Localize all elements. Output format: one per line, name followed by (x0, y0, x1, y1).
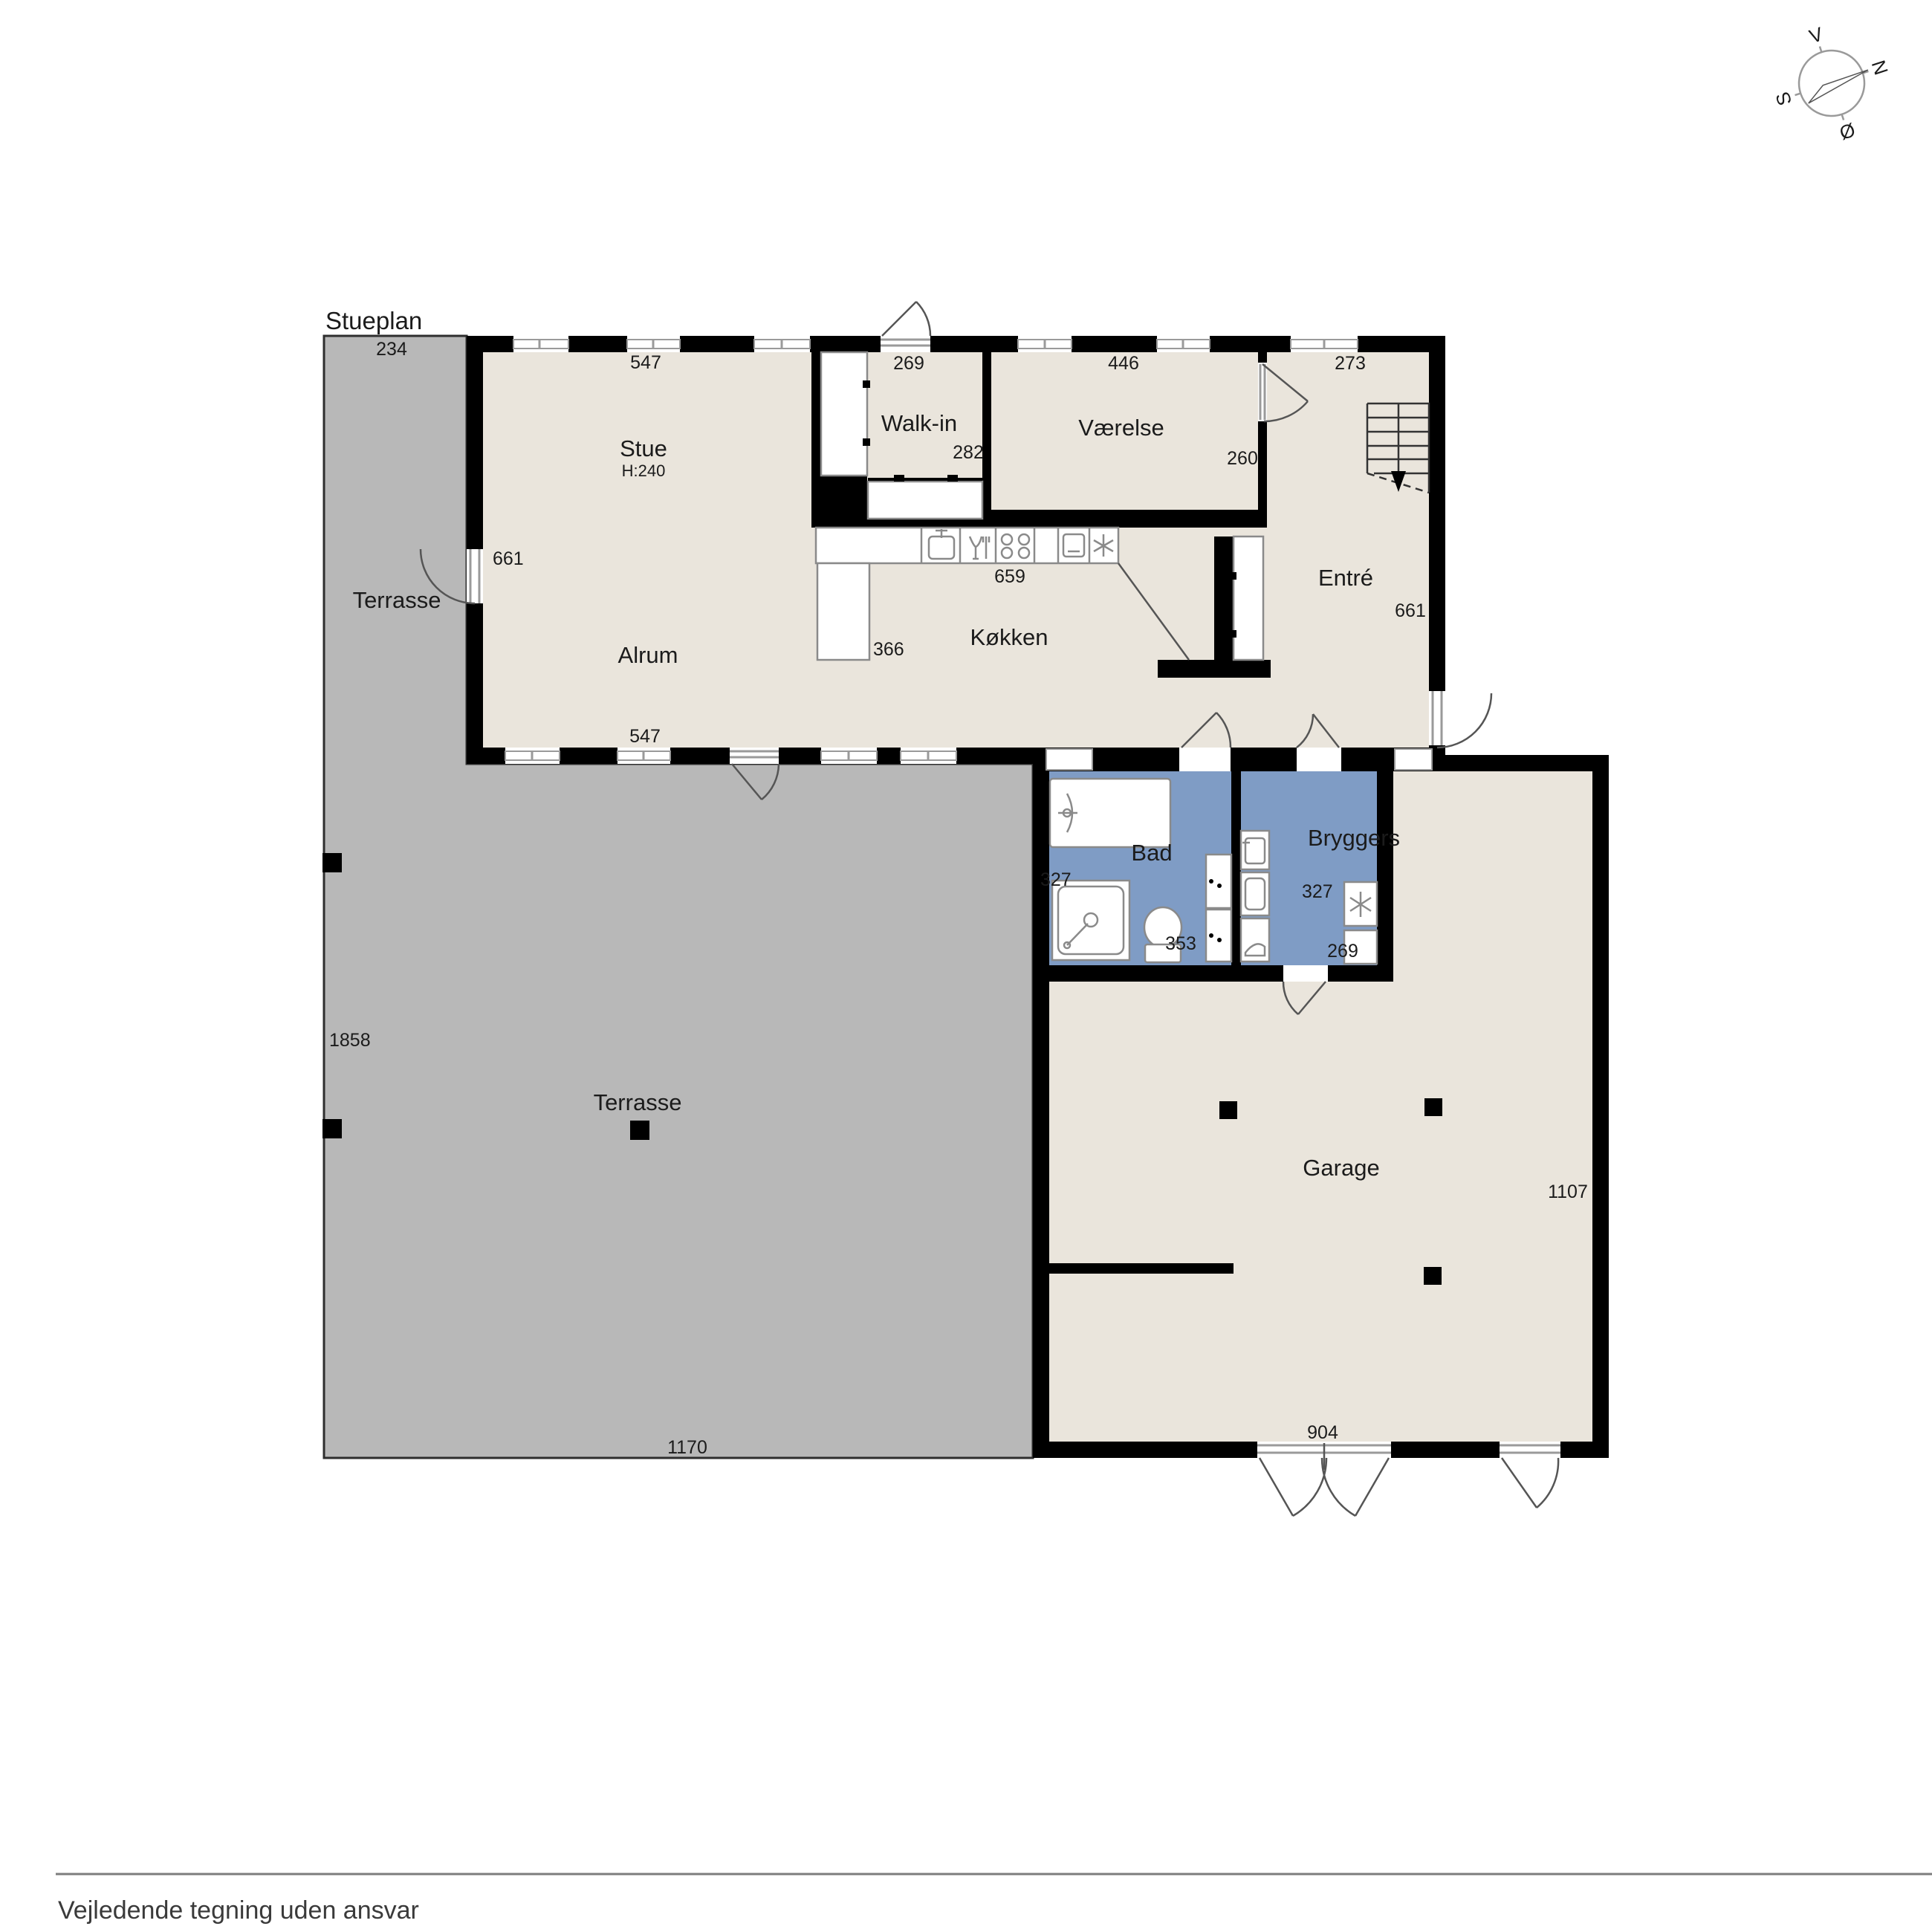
window (505, 751, 560, 760)
window (901, 751, 956, 760)
window (1157, 340, 1210, 349)
dim-garage-east: 1107 (1548, 1181, 1588, 1202)
dim-stue-top: 547 (630, 352, 661, 373)
footer: Vejledende tegning uden ansvar (56, 1874, 1932, 1925)
dim-walkin-top: 269 (893, 353, 924, 374)
entre-closet (1234, 537, 1263, 660)
walkin-east-wall (982, 352, 991, 519)
entre-closet-wall (1214, 537, 1234, 660)
plan-title: Stueplan (325, 307, 422, 334)
window (617, 751, 670, 760)
window (627, 340, 680, 349)
vaerelse-south-wall (991, 510, 1267, 528)
entre-closet-stub (1158, 660, 1271, 678)
room-label-walkin: Walk-in (881, 410, 957, 436)
window (754, 340, 810, 349)
dim-bryggers-west: 327 (1302, 881, 1333, 902)
dim-terrasse-bottom: 1170 (667, 1437, 707, 1458)
dim-vaerelse-top: 446 (1108, 353, 1139, 374)
room-label-entre: Entré (1318, 565, 1373, 591)
kitchen-corner-wall (811, 476, 867, 528)
room-label-koekken: Køkken (970, 624, 1048, 650)
wall-junction-gap (1046, 749, 1092, 770)
bryggers-east-wall (1377, 771, 1393, 965)
wing-east-wall (1592, 771, 1609, 1458)
room-label-bryggers: Bryggers (1308, 825, 1400, 851)
dim-entre-east: 661 (1395, 600, 1426, 621)
stue-closet-wall (811, 352, 821, 476)
room-label-terrasse-upper: Terrasse (353, 587, 441, 613)
room-label-vaerelse: Værelse (1078, 415, 1164, 441)
bathtub-icon (1050, 779, 1170, 847)
garage-pillar (1219, 1101, 1237, 1119)
compass-rose: N Ø S V (1754, 5, 1909, 161)
dim-koekken-counter: 659 (994, 566, 1025, 587)
dim-stue-west: 661 (493, 548, 524, 569)
bad-bryggers-south-wall (1033, 965, 1393, 982)
room-label-terrasse-main: Terrasse (594, 1089, 682, 1115)
utility-cabinet-icon (1241, 918, 1269, 962)
room-label-bad: Bad (1131, 840, 1172, 866)
shower-icon (1052, 881, 1129, 960)
footer-disclaimer: Vejledende tegning uden ansvar (58, 1896, 419, 1925)
compass-letter-e: Ø (1837, 118, 1858, 144)
kitchen-island (817, 563, 869, 660)
east-wall (1429, 352, 1445, 748)
stue-closet (821, 352, 867, 476)
dim-vaerelse-east: 260 (1227, 448, 1258, 469)
kitchen-wall-a (867, 519, 991, 528)
dim-bad-west: 327 (1040, 869, 1072, 890)
bad-bryggers-divider (1231, 771, 1241, 965)
floorplan-page: Stueplan Stue H:240 Walk-in Værelse Entr… (0, 0, 1932, 1932)
ceiling-height-label: H:240 (622, 461, 666, 480)
floorplan-drawing: Stueplan Stue H:240 Walk-in Værelse Entr… (0, 0, 1932, 1932)
door-walkin-exterior (881, 302, 930, 346)
kitchen-counter (816, 528, 1118, 563)
compass-letter-s: S (1771, 89, 1796, 108)
compass-letter-w: V (1806, 22, 1826, 48)
washer-icon (1241, 872, 1269, 915)
garage-pillar (1424, 1267, 1442, 1285)
window (1018, 340, 1072, 349)
compass-letter-n: N (1867, 57, 1893, 77)
room-label-alrum: Alrum (618, 642, 678, 668)
dim-bad-bottom: 353 (1165, 933, 1196, 954)
dim-garage-bottom: 904 (1307, 1422, 1338, 1443)
dim-walkin-east: 282 (953, 442, 984, 463)
terrace-post (322, 1119, 342, 1138)
bathroom-cabinets (1206, 855, 1231, 962)
dim-terrasse-west: 1858 (329, 1030, 371, 1051)
garage-stub-wall (1049, 1263, 1234, 1274)
wall-junction-gap (1395, 749, 1432, 770)
dim-bryggers-bottom: 269 (1327, 941, 1358, 962)
garage-pillar (1424, 1098, 1442, 1116)
compass-needle-south (1804, 70, 1872, 103)
dim-terrasse-top: 234 (376, 339, 407, 360)
window (821, 751, 877, 760)
dim-koekken-island: 366 (873, 639, 904, 660)
walkin-wardrobe (868, 482, 982, 519)
window (1291, 340, 1358, 349)
room-label-stue: Stue (620, 435, 667, 461)
door-entre-exterior (1433, 691, 1491, 748)
window (513, 340, 568, 349)
utility-sink-icon (1241, 831, 1269, 869)
room-label-garage: Garage (1303, 1155, 1379, 1181)
dim-entre-top: 273 (1335, 353, 1366, 374)
terrace-post (630, 1121, 649, 1140)
dim-alrum-bottom: 547 (629, 726, 661, 747)
terrace-post (322, 853, 342, 872)
